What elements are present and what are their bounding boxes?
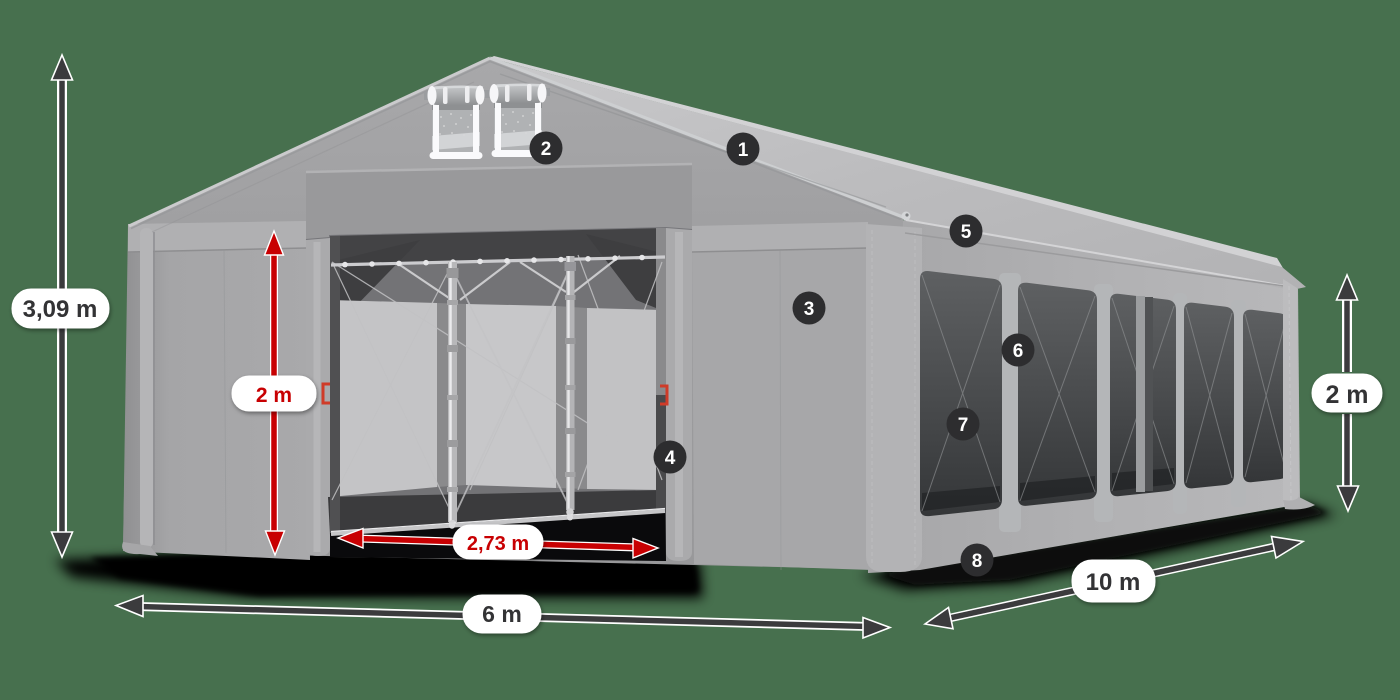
svg-text:3,09 m: 3,09 m xyxy=(23,296,98,323)
svg-text:2: 2 xyxy=(541,139,552,160)
svg-text:2,73 m: 2,73 m xyxy=(467,533,529,555)
svg-text:8: 8 xyxy=(972,551,983,572)
svg-text:7: 7 xyxy=(958,415,969,436)
svg-text:10 m: 10 m xyxy=(1086,569,1141,596)
svg-text:1: 1 xyxy=(738,140,749,161)
svg-text:4: 4 xyxy=(665,448,676,469)
svg-text:5: 5 xyxy=(961,222,972,243)
svg-text:2 m: 2 m xyxy=(1325,381,1368,409)
svg-text:3: 3 xyxy=(804,299,815,320)
svg-text:6 m: 6 m xyxy=(482,601,522,627)
svg-text:6: 6 xyxy=(1013,341,1024,362)
svg-text:2 m: 2 m xyxy=(256,384,292,407)
